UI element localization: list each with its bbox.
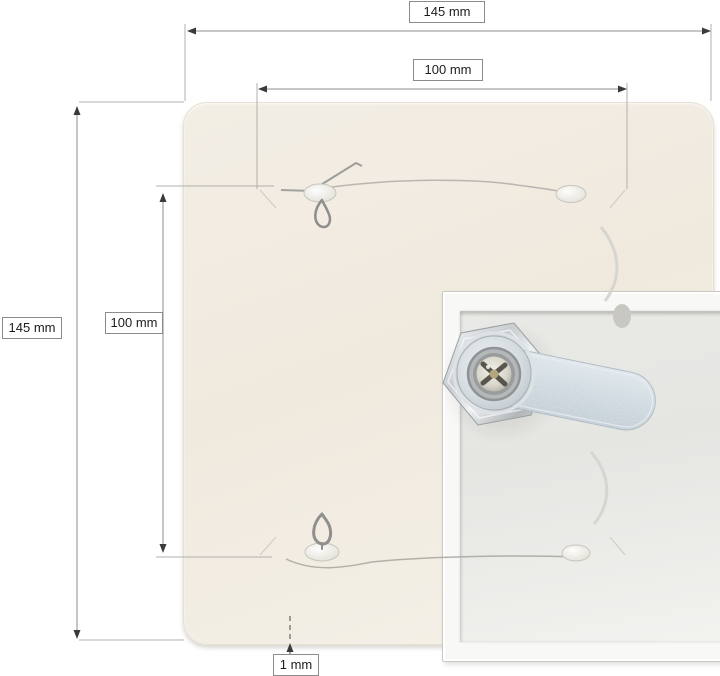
inner-frame (442, 291, 720, 662)
door-panel (460, 311, 720, 642)
dim-label-outer-height: 145 mm (2, 317, 62, 339)
access-panel-outer-face (183, 102, 714, 645)
dim-label-thickness: 1 mm (273, 654, 319, 676)
dim-label-outer-width: 145 mm (409, 1, 485, 23)
dim-label-inner-width: 100 mm (413, 59, 483, 81)
product-diagram: 145 mm 100 mm 145 mm 100 mm 1 mm (0, 0, 720, 676)
dim-label-inner-height: 100 mm (105, 312, 163, 334)
